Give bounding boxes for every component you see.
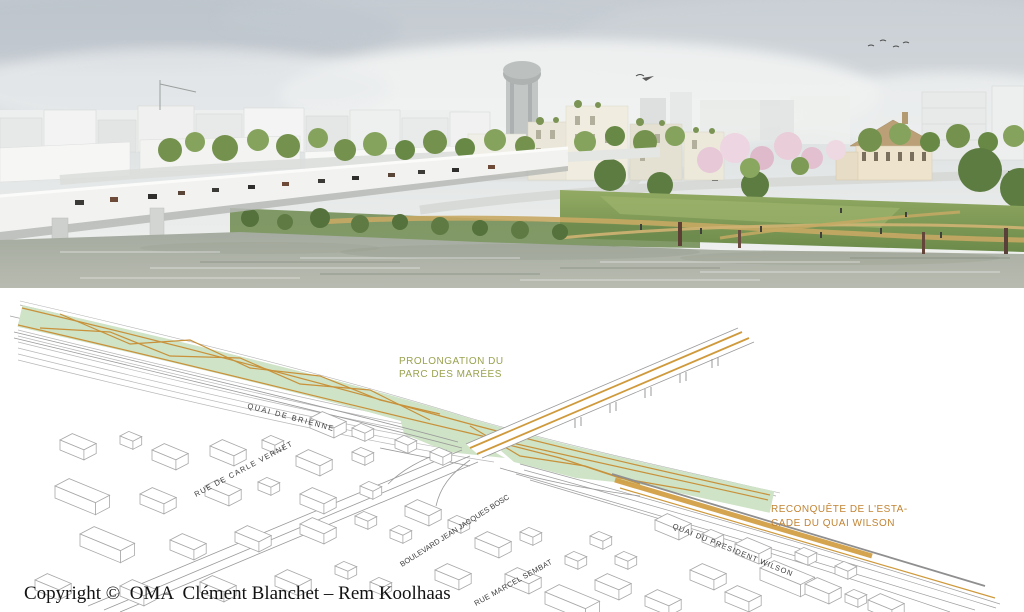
- annotation-estacade-quai-wilson-line1: RECONQUÊTE DE L'ESTA-: [771, 502, 908, 515]
- park-band: [18, 301, 780, 502]
- new-bridge: [466, 328, 754, 458]
- site-plan-drawing: QUAI DE BRIENNE RUE DE CARLE VERNET BOUL…: [0, 298, 1024, 612]
- annotation-parc-des-marees-line1: PROLONGATION DU: [399, 356, 504, 367]
- annotation-parc-des-marees-line2: PARC DES MARÉES: [399, 367, 502, 380]
- street-label-rue-marcel-sembat: RUE MARCEL SEMBAT: [473, 557, 554, 608]
- annotation-estacade-quai-wilson-line2: CADE DU QUAI WILSON: [771, 518, 895, 529]
- copyright-notice: Copyright © OMA Clément Blanchet – Rem K…: [24, 583, 451, 605]
- architectural-rendering: [0, 0, 1024, 288]
- presentation-board: QUAI DE BRIENNE RUE DE CARLE VERNET BOUL…: [0, 0, 1024, 612]
